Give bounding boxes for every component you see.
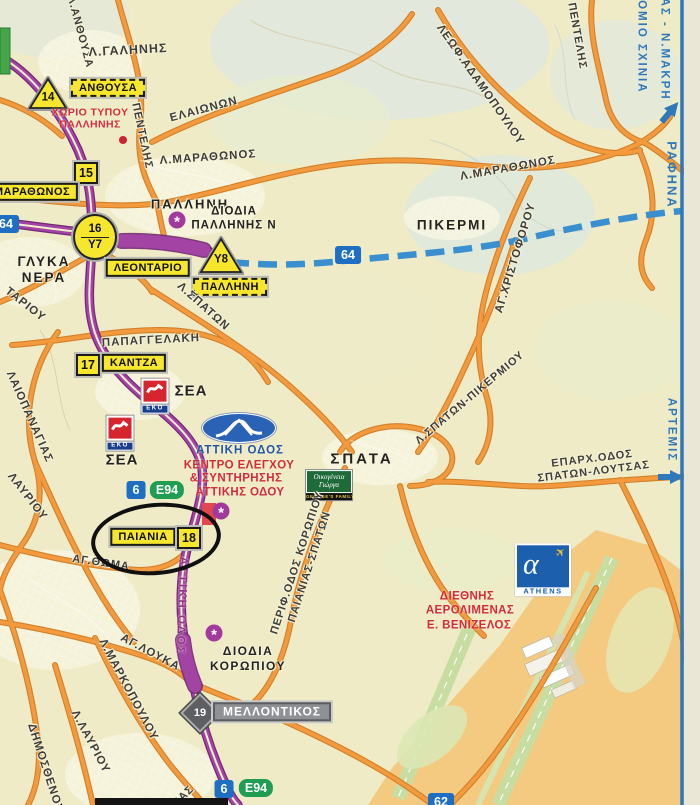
route-shield-64: 64 — [335, 246, 361, 264]
georges-family-script: Οικογένεια Γιώργα — [306, 470, 352, 493]
road-map: Λ.ΑΝΘΟΥΣΑ Λ.ΓΑΛΗΝΗΣ 14 ΑΝΘΟΥΣΑ ΧΩΡΙΟ ΤΥΠ… — [0, 0, 700, 805]
direction-label-artemis: ΑΡΤΕΜΙΣ — [665, 398, 678, 462]
eko-symbol-icon — [142, 379, 169, 404]
road-label-xristoforou: ΑΓ.ΧΡΙΣΤΟΦΟΡΟΥ — [493, 201, 539, 314]
airport-label-3: Ε. ΒΕΝΙΖΕΛΟΣ — [427, 620, 511, 633]
eko-logo: EKO — [142, 379, 169, 414]
road-label-lavriou-south: Λ.ΛΑΥΡΙΟΥ — [68, 708, 112, 776]
junction-17: 17 — [76, 354, 100, 376]
cropped-sign-bar — [95, 798, 228, 805]
exit-sign-anthousa: ΑΝΘΟΥΣΑ — [71, 79, 145, 97]
junction-16-y7: 16 Y7 — [73, 214, 117, 260]
attiki-odos-logo — [202, 413, 276, 443]
road-label-pentelis-west: ΠΕΝΤΕΛΗΣ — [129, 102, 155, 170]
place-label-glyka-nera: ΓΛΥΚΑ ΝΕΡΑ — [18, 254, 71, 286]
airport-label-1: ΔΙΕΘΝΗΣ — [440, 591, 494, 604]
exit-sign-paiania: ΠΑΙΑΝΙΑ — [110, 528, 175, 546]
junction-14-number: 14 — [42, 91, 55, 104]
place-label-sea-1: ΣΕΑ — [175, 384, 208, 401]
junction-18: 18 — [177, 527, 201, 549]
road-label-ag-thoma: ΑΓ.ΘΩΜΑ — [71, 553, 130, 573]
route-shield-e94-lower: E94 — [239, 779, 273, 797]
attiki-odos-wordmark: ΑΤΤΙΚΗ ΟΔΟΣ — [196, 445, 284, 458]
route-shield-64-west: 64 — [0, 215, 19, 233]
label-layer: Λ.ΑΝΘΟΥΣΑ Λ.ΓΑΛΗΝΗΣ 14 ΑΝΘΟΥΣΑ ΧΩΡΙΟ ΤΥΠ… — [0, 0, 700, 805]
athens-airport-logo-symbol: α ✈ — [517, 545, 569, 587]
airport-label-2: ΑΕΡΟΛΙΜΕΝΑΣ — [426, 605, 514, 618]
control-centre-label-2: & ΣΥΝΤΗΡΗΣΗΣ — [190, 473, 283, 486]
route-shield-6-lower: 6 — [215, 780, 234, 798]
direction-arrow-loutsa-icon — [656, 467, 686, 487]
edge-label-sxinia: ΡΟΜΙΟ ΣΧΙΝΙΑ — [635, 0, 648, 94]
eko-logo-2: EKO — [107, 416, 134, 451]
junction-y7-number: Y7 — [75, 238, 115, 252]
road-label-pentelis-east: ΠΕΝΤΕΛΗΣ — [565, 2, 589, 70]
junction-y8: Y8 — [198, 236, 244, 276]
exit-sign-pallini-toll: ΠΑΛΛΗΝΗ — [193, 278, 267, 296]
place-label-papaggelaki: ΠΑΠΑΓΓΕΛΑΚΗ — [102, 332, 201, 350]
road-label-marathonos-west: Λ.ΜΑΡΑΘΩΝΟΣ — [159, 148, 257, 168]
athens-airport-logo-text: ATHENS — [517, 587, 569, 595]
edge-label-makri: ΝΑΣ - Ν.ΜΑΚΡΗ — [658, 0, 671, 101]
road-label-perif-koropiou: ΠΕΡΙΦ.ΟΔΟΣ ΚΟΡΩΠΙΟΥ ΠΑΙΑΝΙΑΣ-ΣΠΑΤΩΝ — [268, 490, 339, 640]
road-label-dimosthenous: ΔΗΜΟΣΘΕΝΟΥΣ — [24, 722, 67, 805]
road-label-elaionon: ΕΛΑΙΩΝΩΝ — [169, 95, 240, 126]
toll-star-pallini-icon: * — [169, 212, 186, 229]
place-label-diodia-pallinis: ΔΙΟΔΙΑ ΠΑΛΛΗΝΗΣ Ν — [191, 205, 276, 234]
exit-sign-mellontikos: ΜΕΛΛΟΝΤΙΚΟΣ — [213, 702, 331, 721]
road-label-galinis: Λ.ΓΑΛΗΝΗΣ — [88, 41, 168, 59]
place-label-diodia-koropiou: ΔΙΟΔΙΑ ΚΟΡΩΠΙΟΥ — [210, 644, 286, 674]
place-label-pikermi: ΠΙΚΕΡΜΙ — [417, 217, 487, 232]
route-shield-62: 62 — [428, 793, 454, 805]
poi-label-xorio-typou: ΧΩΡΙΟ ΤΥΠΟΥ ΠΑΛΛΗΝΗΣ — [52, 107, 129, 131]
poi-dot — [119, 136, 127, 144]
eko-symbol-icon — [107, 416, 134, 441]
exit-sign-marathonos: ΜΑΡΑΘΩΝΟΣ — [0, 183, 78, 201]
direction-label-rafina: ΡΑΦΗΝΑ — [664, 141, 679, 209]
road-label-lavriou-west: ΛΑΥΡΙΟΥ — [4, 471, 49, 524]
junction-y8-number: Y8 — [214, 254, 228, 267]
junction-16-number: 16 — [75, 222, 115, 236]
road-label-palaiopanagias: ΛΑΙΟΠΑΝΑΓΙΑΣ — [3, 369, 55, 464]
road-label-adamopoulou: ΛΕΩΦ.ΑΔΑΜΟΠΟΥΛΟΥ — [433, 22, 526, 147]
place-label-sea-2: ΣΕΑ — [106, 453, 139, 470]
eko-wordmark: EKO — [107, 442, 134, 451]
exit-sign-kantza: ΚΑΝΤΖΑ — [102, 354, 166, 372]
place-label-spata: ΣΠΑΤΑ — [330, 452, 393, 469]
road-label-marathonos-east: Λ.ΜΑΡΑΘΩΝΟΣ — [459, 154, 557, 184]
exit-sign-leontario: ΛΕΟΝΤΑΡΙΟ — [106, 259, 190, 277]
alpha-glyph-icon: α — [523, 547, 539, 581]
motorway-label-attiki-odos: ΑΤΤΙΚΗ ΟΔΟΣ — [173, 556, 189, 655]
toll-star-koropi-icon: * — [206, 625, 223, 642]
control-centre-label-3: ΑΤΤΙΚΗΣ ΟΔΟΥ — [196, 487, 285, 500]
athens-airport-logo: α ✈ ATHENS — [515, 543, 571, 596]
junction-19-number: 19 — [194, 707, 206, 719]
road-label-eparx-spaton-loutsas: ΕΠΑΡΧ.ΟΔΟΣ ΣΠΑΤΩΝ-ΛΟΥΤΣΑΣ — [535, 446, 650, 486]
control-centre-label-1: ΚΕΝΤΡΟ ΕΛΕΓΧΟΥ — [184, 460, 295, 473]
road-label-spaton-pikermiou: Λ.ΣΠΑΤΩΝ-ΠΙΚΕΡΜΙΟΥ — [413, 349, 527, 447]
eko-wordmark: EKO — [142, 405, 169, 414]
route-shield-e94-upper: E94 — [150, 481, 184, 499]
junction-15: 15 — [74, 162, 98, 184]
route-shield-6-upper: 6 — [127, 481, 146, 499]
road-label-leontariou-fragment: ΤΑΡΙΟΥ — [2, 285, 47, 324]
toll-star-kentro-icon: * — [213, 503, 230, 520]
airplane-icon: ✈ — [553, 545, 569, 561]
